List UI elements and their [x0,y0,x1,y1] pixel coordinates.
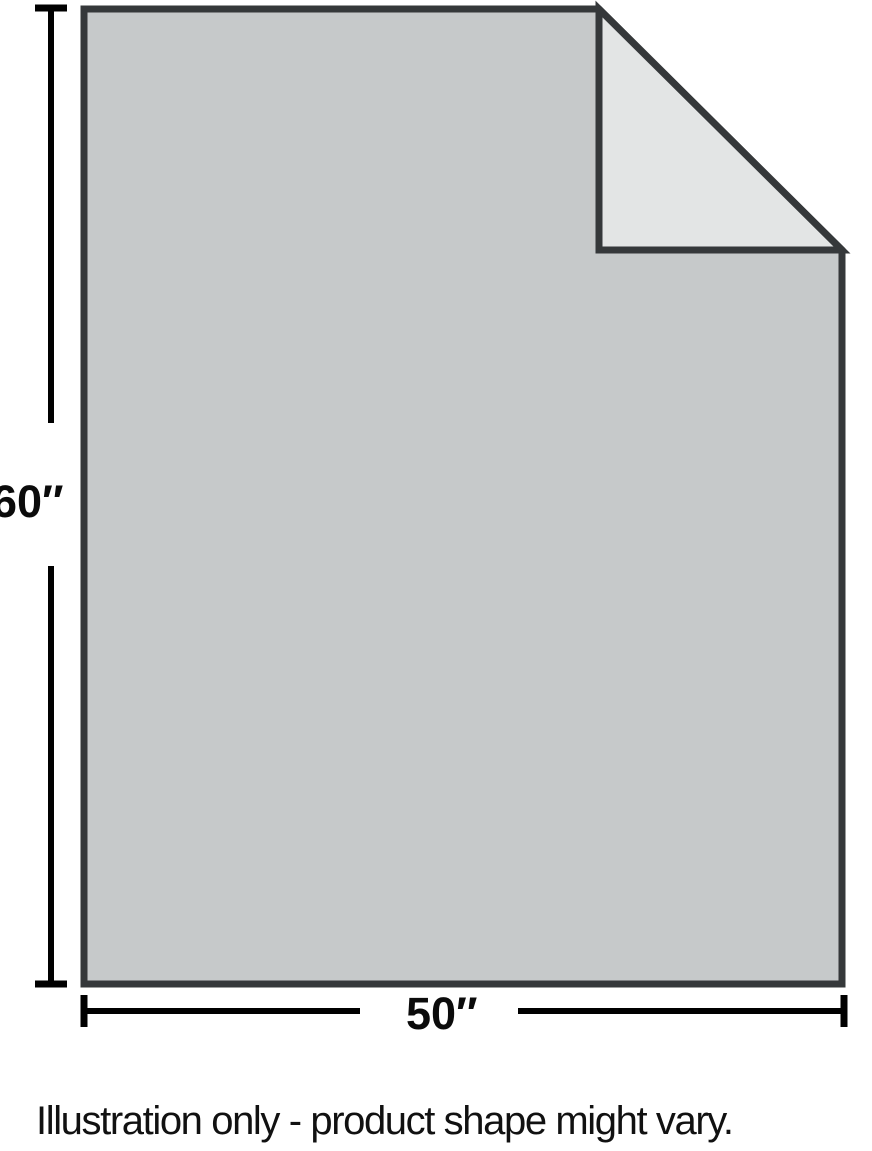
height-dimension-label: 60″ [0,479,64,524]
width-dimension-label: 50″ [406,991,478,1036]
blanket-diagram-canvas [0,0,872,1151]
disclaimer-caption: Illustration only - product shape might … [36,1098,733,1144]
product-dimension-illustration: 60″ 50″ Illustration only - product shap… [0,0,872,1151]
blanket-fold-corner [599,9,842,250]
